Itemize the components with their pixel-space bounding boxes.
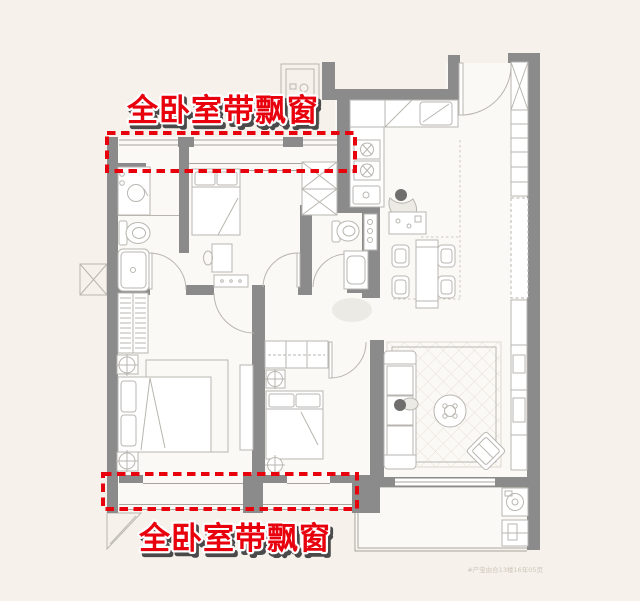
floor-layer [114, 63, 527, 549]
bed-icon [118, 377, 211, 452]
nightstand-icon [116, 450, 138, 472]
fridge-icon [420, 102, 452, 125]
toilet-icon [119, 221, 150, 245]
ac-platform-bottom-left [107, 513, 141, 549]
wardrobe-icon [118, 293, 148, 353]
annotation-top: 全卧室带飘窗 全卧室带飘窗 [126, 93, 322, 133]
sink-vanity-icon [344, 251, 368, 289]
tv-console-icon [511, 300, 527, 470]
toilet-icon [332, 221, 359, 242]
nightstand-icon [116, 354, 138, 376]
shower-icon [118, 249, 149, 291]
nightstand-icon [265, 369, 285, 389]
dresser-icon [240, 365, 253, 450]
ac-platform-left [80, 264, 107, 295]
annotation-top-label: 全卧室带飘窗 [126, 93, 319, 129]
entry-foyer [511, 62, 528, 298]
bedroom-bottom [265, 341, 328, 475]
floorplan-canvas: 全卧室带飘窗 全卧室带飘窗 全卧室带飘窗 全卧室带飘窗 #产宝由合13楼16年0… [0, 0, 640, 601]
coffee-table-icon [434, 395, 466, 427]
dining-table-icon [416, 240, 438, 308]
bath-mat [332, 298, 372, 322]
annotation-bottom: 全卧室带飘窗 全卧室带飘窗 [138, 521, 334, 561]
shoe-cabinet-icon [511, 62, 528, 196]
dresser-icon [214, 275, 248, 287]
annotation-bottom-label: 全卧室带飘窗 [138, 521, 331, 557]
island-counter-icon [389, 212, 426, 234]
bed-icon [266, 391, 323, 459]
washer-icon [502, 488, 528, 516]
sink-vanity-icon [118, 167, 150, 215]
plumbing-shaft-icon [364, 214, 377, 250]
overhead-cabinet-icon [511, 198, 528, 298]
wardrobe-icon [265, 341, 328, 368]
balcony-slider [395, 479, 495, 486]
watermark-text: #产宝由合13楼16年05页 [467, 565, 543, 574]
bed-icon [192, 169, 240, 235]
floorplan-page: 全卧室带飘窗 全卧室带飘窗 全卧室带飘窗 全卧室带飘窗 #产宝由合13楼16年0… [0, 0, 640, 601]
balcony-cabinet-icon [502, 520, 528, 546]
person-sitting-icon [394, 398, 418, 411]
sofa-icon [384, 351, 418, 469]
